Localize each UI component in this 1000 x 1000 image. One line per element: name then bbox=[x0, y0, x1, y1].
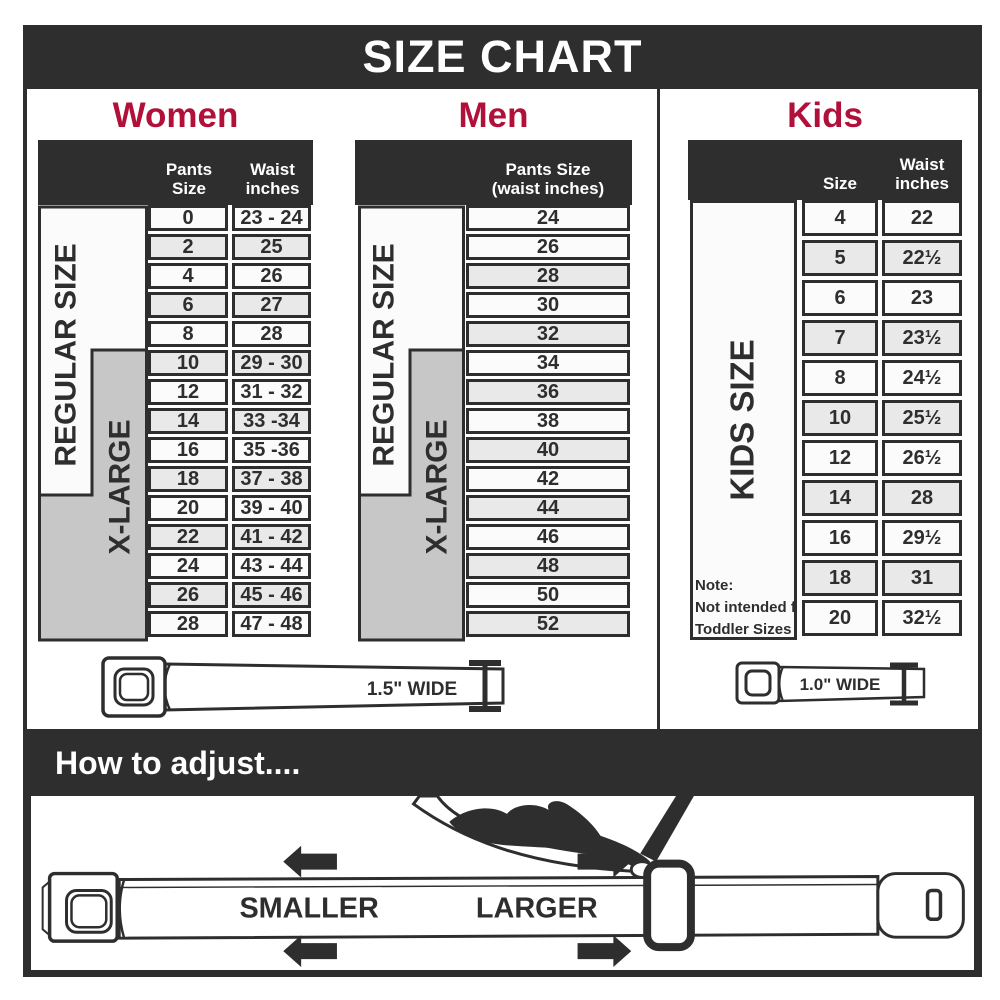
waist-cell: 25½ bbox=[882, 400, 962, 436]
size-cell: 48 bbox=[466, 553, 630, 579]
size-cell: 7 bbox=[802, 320, 878, 356]
adult-belt-illustration: 1.5" WIDE bbox=[95, 650, 515, 722]
waist-cell: 27 bbox=[232, 292, 311, 318]
kids-belt-width-label: 1.0" WIDE bbox=[800, 675, 881, 694]
section-divider bbox=[657, 89, 660, 733]
table-row: 426 bbox=[148, 263, 311, 289]
size-cell: 14 bbox=[802, 480, 878, 516]
table-row: 627 bbox=[148, 292, 311, 318]
size-cell: 18 bbox=[148, 466, 228, 492]
size-cell: 40 bbox=[466, 437, 630, 463]
waist-cell: 23½ bbox=[882, 320, 962, 356]
adjust-illustration: SMALLER LARGER bbox=[31, 796, 974, 970]
belt-tip bbox=[878, 874, 964, 938]
women-pants-size-header: Pants Size bbox=[148, 160, 230, 198]
table-row: 1029 - 30 bbox=[148, 350, 311, 376]
kids-side-label: KIDS SIZE bbox=[724, 339, 761, 500]
waist-cell: 28 bbox=[232, 321, 311, 347]
waist-cell: 43 - 44 bbox=[232, 553, 311, 579]
men-xlarge-label: X-LARGE bbox=[421, 420, 454, 555]
waist-cell: 37 - 38 bbox=[232, 466, 311, 492]
table-row: 2039 - 40 bbox=[148, 495, 311, 521]
table-row: 723½ bbox=[802, 320, 962, 356]
size-cell: 24 bbox=[148, 553, 228, 579]
women-regular-label: REGULAR SIZE bbox=[50, 243, 83, 466]
size-cell: 14 bbox=[148, 408, 228, 434]
table-row: 824½ bbox=[802, 360, 962, 396]
women-table-header: Pants Size Waist inches bbox=[38, 140, 313, 205]
size-cell: 5 bbox=[802, 240, 878, 276]
waist-cell: 29½ bbox=[882, 520, 962, 556]
waist-cell: 47 - 48 bbox=[232, 611, 311, 637]
size-cell: 26 bbox=[466, 234, 630, 260]
waist-cell: 31 - 32 bbox=[232, 379, 311, 405]
adjust-heading: How to adjust.... bbox=[55, 745, 300, 782]
adjust-panel: SMALLER LARGER bbox=[31, 796, 974, 970]
size-cell: 34 bbox=[466, 350, 630, 376]
table-row: 623 bbox=[802, 280, 962, 316]
size-cell: 16 bbox=[148, 437, 228, 463]
waist-cell: 45 - 46 bbox=[232, 582, 311, 608]
women-rows: 023 - 242254266278281029 - 301231 - 3214… bbox=[148, 205, 311, 640]
right-arrow-icon bbox=[578, 935, 632, 967]
size-cell: 8 bbox=[148, 321, 228, 347]
table-row: 34 bbox=[466, 350, 630, 376]
table-row: 225 bbox=[148, 234, 311, 260]
size-cell: 28 bbox=[148, 611, 228, 637]
table-row: 28 bbox=[466, 263, 630, 289]
table-row: 2443 - 44 bbox=[148, 553, 311, 579]
waist-cell: 28 bbox=[882, 480, 962, 516]
kids-size-header: Size bbox=[802, 174, 878, 193]
kids-heading: Kids bbox=[688, 95, 962, 137]
adult-belt-width-label: 1.5" WIDE bbox=[367, 679, 457, 700]
table-row: 1226½ bbox=[802, 440, 962, 476]
table-row: 32 bbox=[466, 321, 630, 347]
kids-waist-header: Waist inches bbox=[882, 155, 962, 193]
size-cell: 26 bbox=[148, 582, 228, 608]
size-cell: 4 bbox=[802, 200, 878, 236]
waist-cell: 29 - 30 bbox=[232, 350, 311, 376]
waist-cell: 22 bbox=[882, 200, 962, 236]
table-row: 1837 - 38 bbox=[148, 466, 311, 492]
size-cell: 20 bbox=[802, 600, 878, 636]
table-row: 2847 - 48 bbox=[148, 611, 311, 637]
page-title: SIZE CHART bbox=[363, 31, 643, 83]
size-cell: 6 bbox=[148, 292, 228, 318]
size-cell: 42 bbox=[466, 466, 630, 492]
size-cell: 8 bbox=[802, 360, 878, 396]
waist-cell: 39 - 40 bbox=[232, 495, 311, 521]
table-row: 42 bbox=[466, 466, 630, 492]
table-row: 50 bbox=[466, 582, 630, 608]
size-cell: 28 bbox=[466, 263, 630, 289]
waist-cell: 35 -36 bbox=[232, 437, 311, 463]
table-row: 1433 -34 bbox=[148, 408, 311, 434]
waist-cell: 32½ bbox=[882, 600, 962, 636]
men-pants-size-header: Pants Size (waist inches) bbox=[466, 160, 630, 198]
size-chart-infographic: SIZE CHART Women Pants Size Waist inches… bbox=[0, 0, 1000, 1000]
waist-cell: 23 bbox=[882, 280, 962, 316]
kids-size-range-labels: KIDS SIZE Note: Not intended for Toddler… bbox=[690, 200, 797, 640]
left-arrow-icon bbox=[283, 935, 337, 967]
size-cell: 24 bbox=[466, 205, 630, 231]
size-cell: 10 bbox=[148, 350, 228, 376]
size-cell: 30 bbox=[466, 292, 630, 318]
women-heading: Women bbox=[38, 95, 313, 137]
size-cell: 38 bbox=[466, 408, 630, 434]
kids-table-header: Size Waist inches bbox=[688, 140, 962, 200]
table-row: 26 bbox=[466, 234, 630, 260]
pulled-strap-end bbox=[640, 796, 694, 862]
table-row: 1629½ bbox=[802, 520, 962, 556]
table-row: 1831 bbox=[802, 560, 962, 596]
size-cell: 10 bbox=[802, 400, 878, 436]
kids-note-line3: Toddler Sizes (T) bbox=[695, 621, 797, 638]
waist-cell: 22½ bbox=[882, 240, 962, 276]
belt-tip-slot bbox=[928, 890, 941, 919]
size-cell: 0 bbox=[148, 205, 228, 231]
table-row: 52 bbox=[466, 611, 630, 637]
title-bar: SIZE CHART bbox=[23, 25, 982, 89]
kids-note-line1: Note: bbox=[695, 577, 733, 594]
smaller-label: SMALLER bbox=[239, 892, 379, 924]
size-cell: 46 bbox=[466, 524, 630, 550]
waist-cell: 26 bbox=[232, 263, 311, 289]
women-xlarge-label: X-LARGE bbox=[104, 420, 137, 555]
waist-cell: 23 - 24 bbox=[232, 205, 311, 231]
table-row: 422 bbox=[802, 200, 962, 236]
table-row: 38 bbox=[466, 408, 630, 434]
women-size-range-labels: REGULAR SIZE X-LARGE bbox=[38, 205, 148, 642]
table-row: 2645 - 46 bbox=[148, 582, 311, 608]
size-cell: 44 bbox=[466, 495, 630, 521]
waist-cell: 24½ bbox=[882, 360, 962, 396]
table-row: 2032½ bbox=[802, 600, 962, 636]
size-cell: 22 bbox=[148, 524, 228, 550]
men-heading: Men bbox=[355, 95, 632, 137]
waist-cell: 25 bbox=[232, 234, 311, 260]
waist-cell: 41 - 42 bbox=[232, 524, 311, 550]
size-cell: 12 bbox=[802, 440, 878, 476]
size-cell: 36 bbox=[466, 379, 630, 405]
table-row: 40 bbox=[466, 437, 630, 463]
table-row: 24 bbox=[466, 205, 630, 231]
men-size-range-labels: REGULAR SIZE X-LARGE bbox=[358, 205, 465, 642]
size-cell: 18 bbox=[802, 560, 878, 596]
table-row: 44 bbox=[466, 495, 630, 521]
waist-cell: 33 -34 bbox=[232, 408, 311, 434]
table-row: 1025½ bbox=[802, 400, 962, 436]
size-cell: 52 bbox=[466, 611, 630, 637]
kids-rows: 422522½623723½824½1025½1226½14281629½183… bbox=[802, 200, 962, 640]
size-cell: 16 bbox=[802, 520, 878, 556]
belt-slider bbox=[647, 864, 691, 948]
waist-cell: 31 bbox=[882, 560, 962, 596]
table-row: 46 bbox=[466, 524, 630, 550]
size-cell: 50 bbox=[466, 582, 630, 608]
table-row: 48 bbox=[466, 553, 630, 579]
size-cell: 2 bbox=[148, 234, 228, 260]
size-cell: 32 bbox=[466, 321, 630, 347]
men-table-header: Pants Size (waist inches) bbox=[355, 140, 632, 205]
table-row: 1231 - 32 bbox=[148, 379, 311, 405]
table-row: 36 bbox=[466, 379, 630, 405]
table-row: 522½ bbox=[802, 240, 962, 276]
table-row: 1428 bbox=[802, 480, 962, 516]
size-cell: 6 bbox=[802, 280, 878, 316]
men-regular-label: REGULAR SIZE bbox=[368, 243, 401, 466]
size-cell: 4 bbox=[148, 263, 228, 289]
left-arrow-icon bbox=[283, 846, 337, 878]
kids-belt-illustration: 1.0" WIDE bbox=[732, 657, 932, 709]
table-row: 2241 - 42 bbox=[148, 524, 311, 550]
table-row: 1635 -36 bbox=[148, 437, 311, 463]
table-row: 828 bbox=[148, 321, 311, 347]
larger-label: LARGER bbox=[476, 892, 598, 924]
waist-cell: 26½ bbox=[882, 440, 962, 476]
size-cell: 20 bbox=[148, 495, 228, 521]
kids-note-line2: Not intended for bbox=[695, 599, 797, 616]
size-cell: 12 bbox=[148, 379, 228, 405]
table-row: 023 - 24 bbox=[148, 205, 311, 231]
men-rows: 242628303234363840424446485052 bbox=[466, 205, 630, 640]
women-waist-header: Waist inches bbox=[232, 160, 313, 198]
table-row: 30 bbox=[466, 292, 630, 318]
